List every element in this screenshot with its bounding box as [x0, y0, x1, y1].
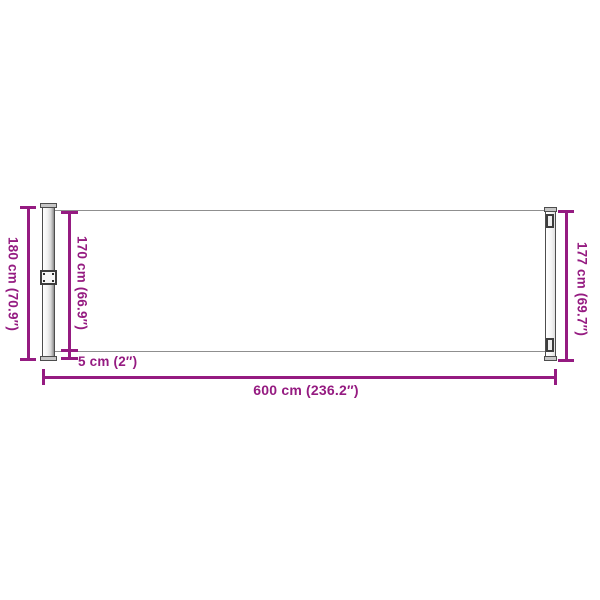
- bracket-screw-icon: [43, 280, 45, 282]
- dimension-tick: [558, 359, 574, 362]
- bracket-screw-icon: [52, 280, 54, 282]
- pull-bar-top-cap: [544, 207, 557, 212]
- dimension-tick: [20, 206, 36, 209]
- pull-bar-handle-top: [546, 214, 554, 228]
- label-bottom-gap: 5 cm (2″): [78, 354, 137, 369]
- pull-bar-handle-bottom: [546, 338, 554, 352]
- wall-bracket: [40, 270, 57, 285]
- label-fabric-height: 170 cm (66.9″): [75, 236, 90, 330]
- dimension-tick: [61, 349, 78, 352]
- label-pull-bar-height: 177 cm (69.7″): [575, 242, 590, 336]
- dimension-tick: [61, 211, 78, 214]
- bracket-screw-icon: [52, 273, 54, 275]
- dimension-tick: [42, 369, 45, 385]
- bracket-screw-icon: [43, 273, 45, 275]
- dimension-tick: [20, 358, 36, 361]
- dimension-tick: [61, 357, 78, 360]
- label-post-height: 180 cm (70.9″): [6, 237, 21, 331]
- dimension-line-pull-bar-height: [565, 211, 568, 361]
- product-dimension-diagram: 180 cm (70.9″) 170 cm (66.9″) 5 cm (2″) …: [0, 0, 600, 600]
- pull-bar-bottom-cap: [544, 356, 557, 361]
- awning-fabric-panel: [54, 210, 546, 352]
- mounting-post-bottom-cap: [40, 356, 57, 361]
- label-extension-length: 600 cm (236.2″): [253, 382, 358, 398]
- dimension-line-fabric-height: [68, 212, 71, 360]
- dimension-line-extension-length: [43, 376, 557, 379]
- dimension-tick: [554, 369, 557, 385]
- mounting-post-top-cap: [40, 203, 57, 208]
- dimension-tick: [558, 210, 574, 213]
- dimension-line-post-height: [27, 207, 30, 360]
